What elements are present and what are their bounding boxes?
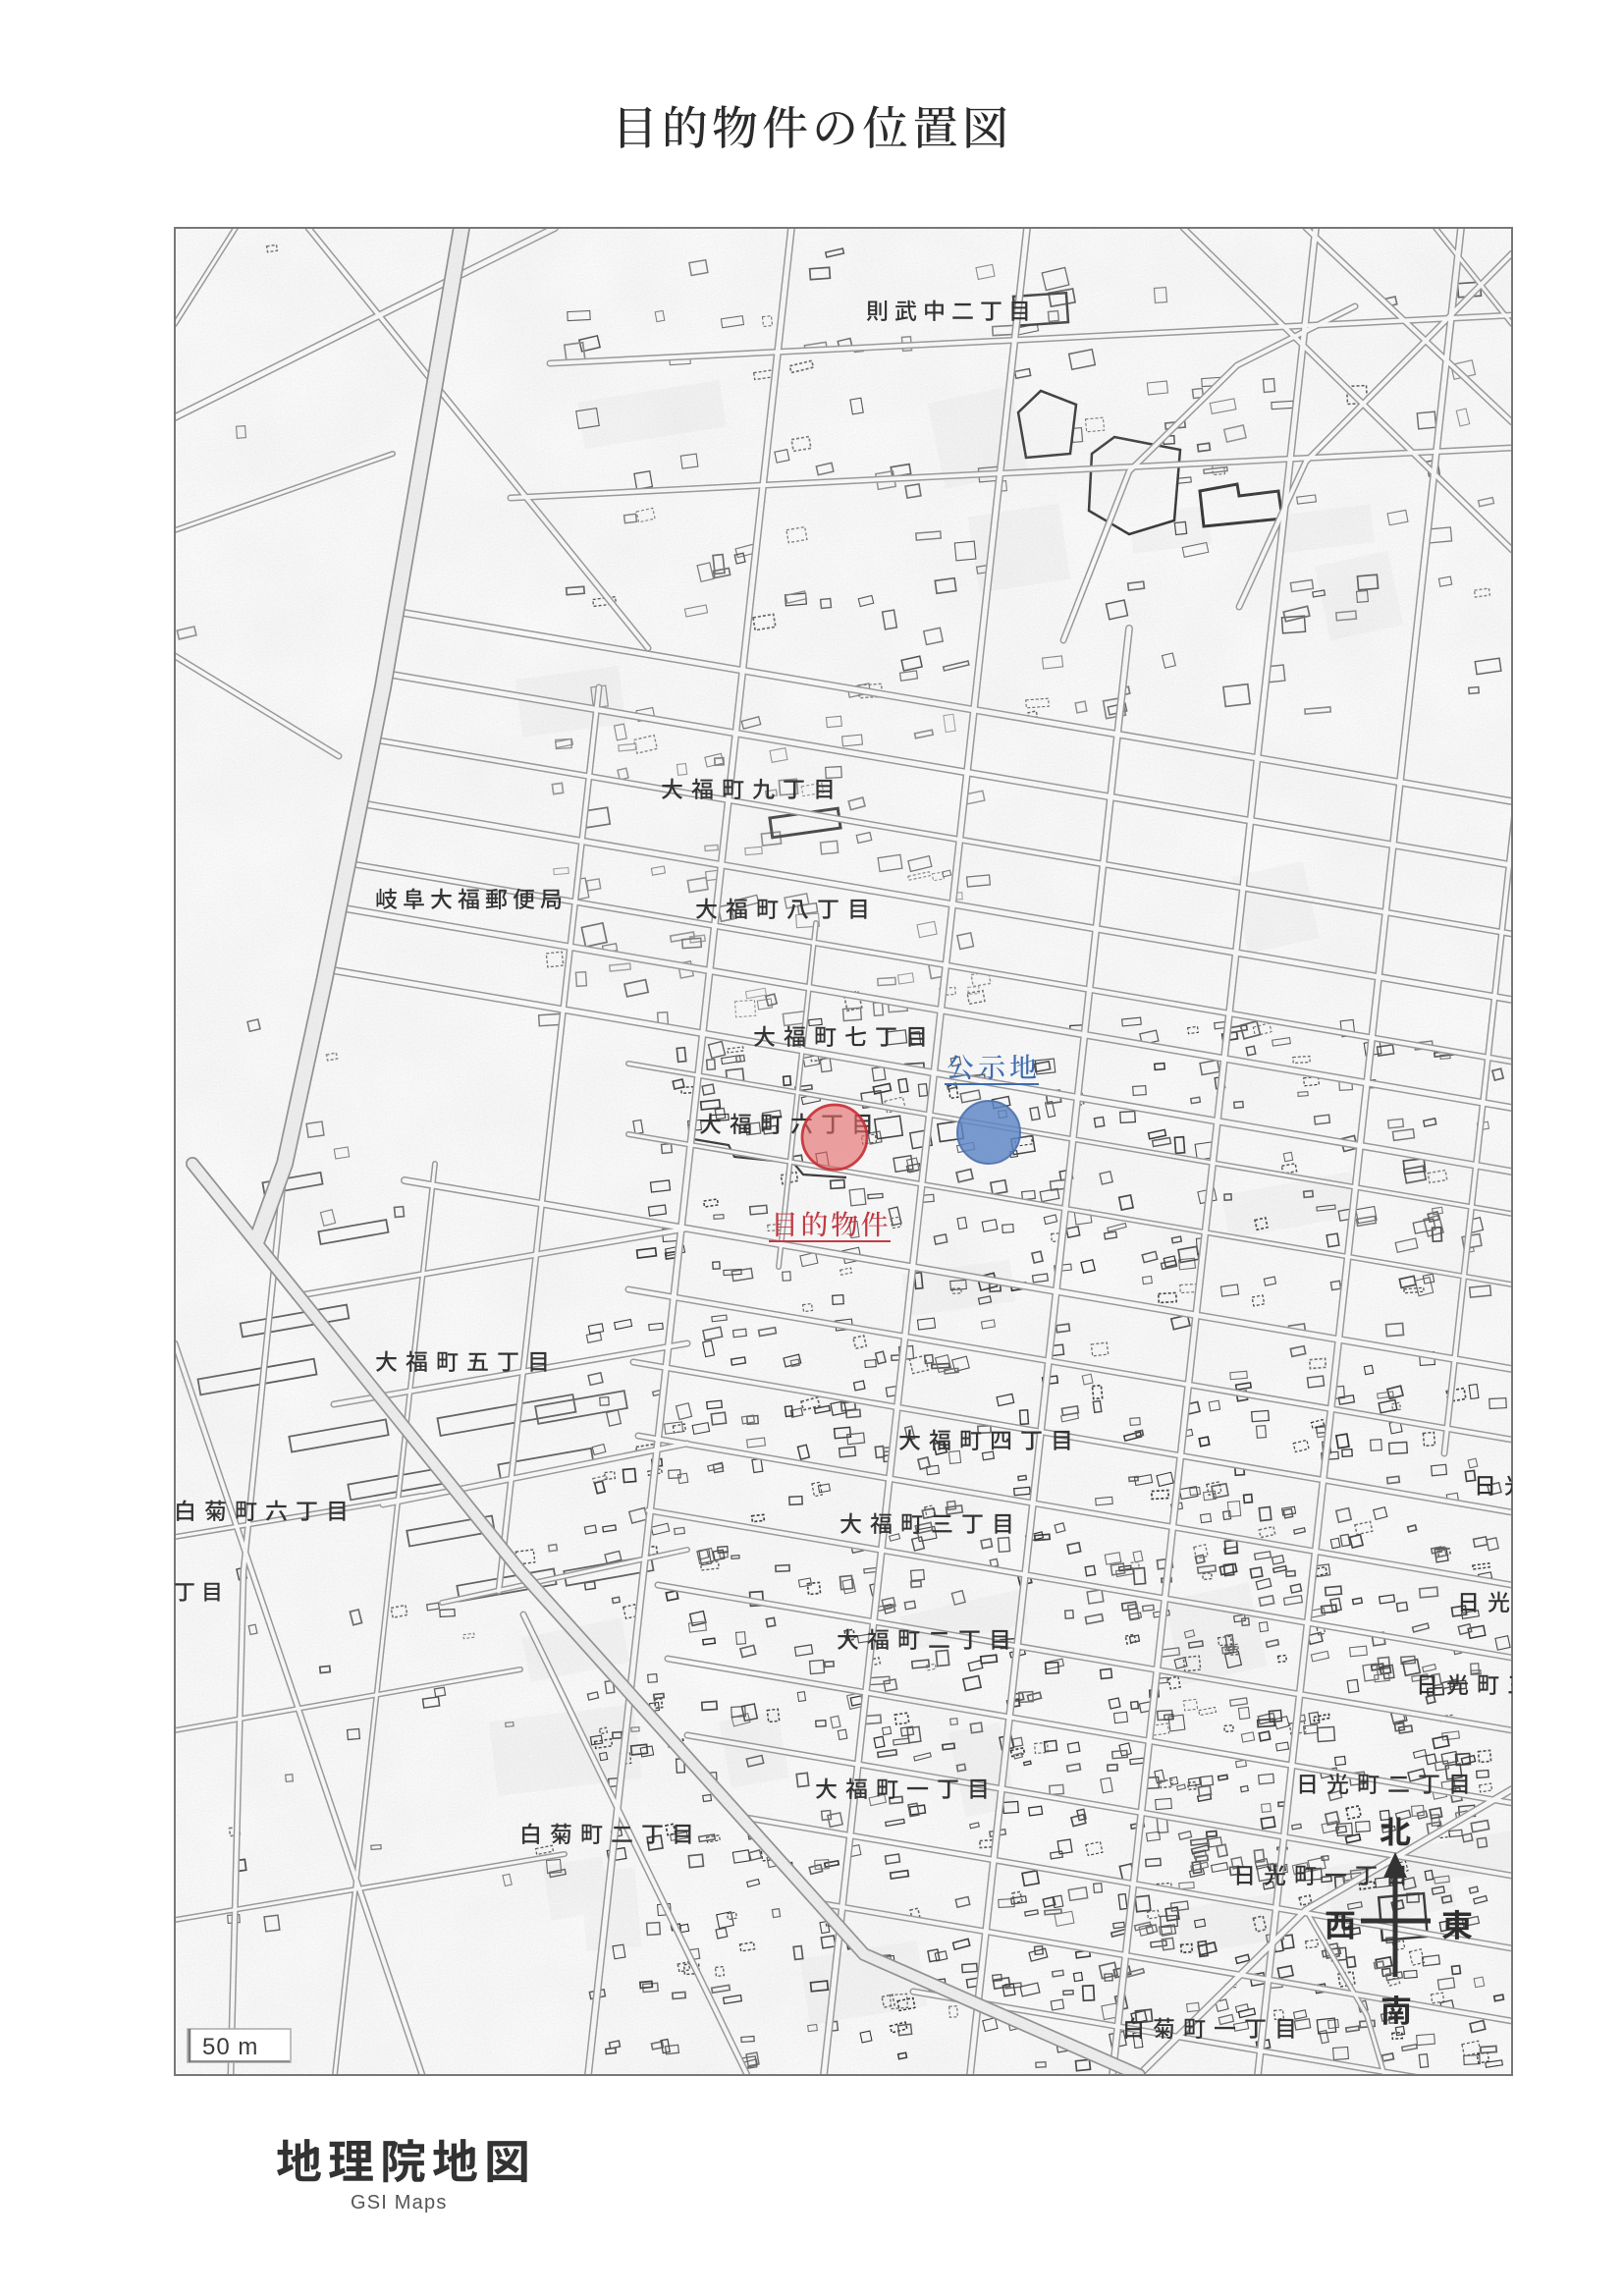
svg-text:GSI Maps: GSI Maps: [351, 2192, 448, 2214]
svg-text:50 m: 50 m: [202, 2034, 258, 2060]
